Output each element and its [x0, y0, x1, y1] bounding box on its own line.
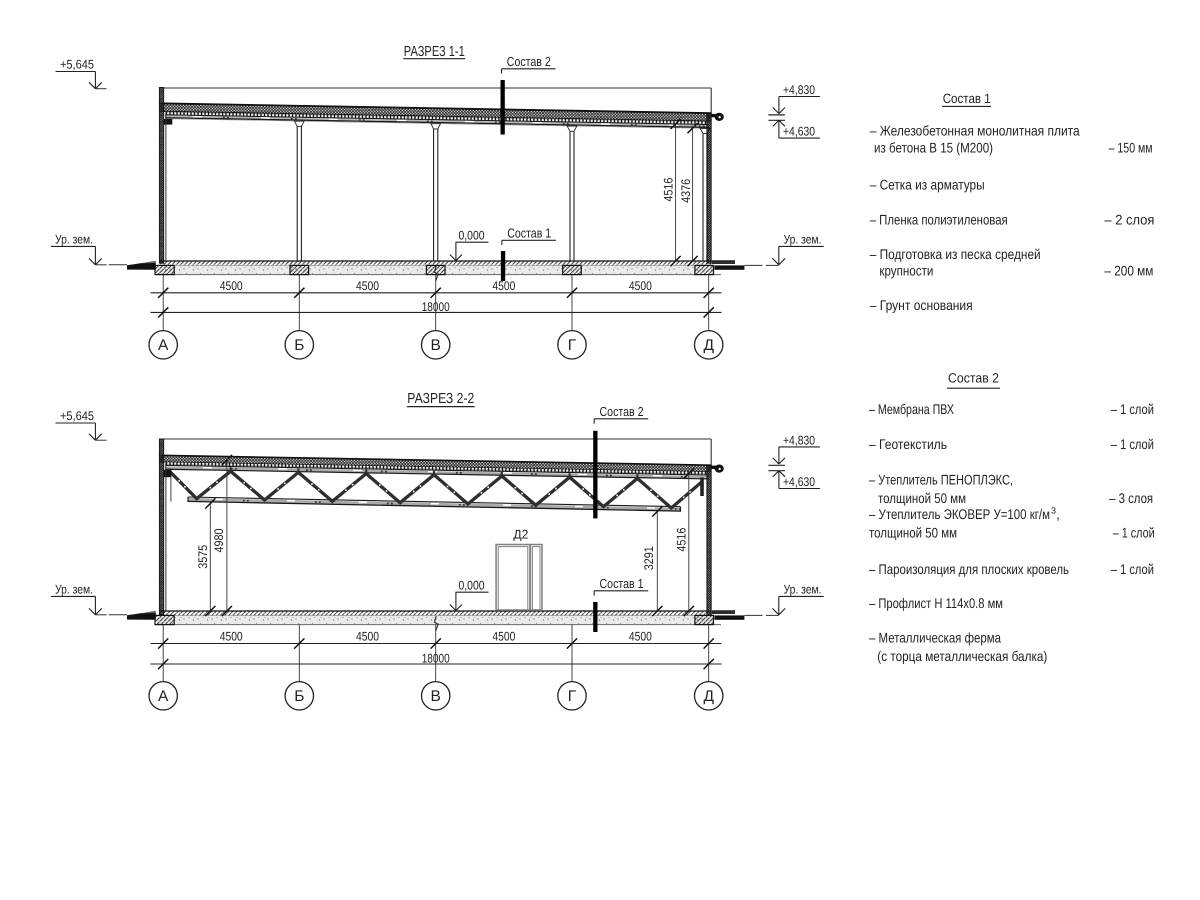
svg-text:(с торца металлическая балка): (с торца металлическая балка)	[877, 648, 1047, 664]
svg-text:А: А	[158, 337, 169, 354]
svg-text:0,000: 0,000	[459, 229, 485, 243]
svg-text:– 2 слоя: – 2 слоя	[1104, 212, 1154, 228]
svg-text:Д: Д	[703, 688, 714, 705]
svg-text:– 3 слоя: – 3 слоя	[1109, 490, 1153, 506]
svg-text:4500: 4500	[492, 279, 515, 293]
svg-text:,: ,	[1056, 506, 1060, 522]
svg-text:– Пленка полиэтиленовая: – Пленка полиэтиленовая	[870, 212, 1008, 228]
svg-text:4500: 4500	[629, 279, 652, 293]
svg-text:– 1 слой: – 1 слой	[1111, 561, 1154, 577]
svg-text:0,000: 0,000	[459, 579, 485, 593]
svg-text:РАЗРЕЗ 2-2: РАЗРЕЗ 2-2	[407, 391, 474, 407]
svg-text:Б: Б	[294, 337, 304, 354]
svg-text:18000: 18000	[422, 300, 450, 314]
svg-text:3575: 3575	[196, 545, 210, 569]
svg-text:– 1 слой: – 1 слой	[1113, 525, 1155, 541]
svg-text:РАЗРЕЗ 1-1: РАЗРЕЗ 1-1	[404, 44, 465, 60]
svg-text:Д: Д	[703, 337, 714, 354]
svg-text:18000: 18000	[422, 651, 450, 665]
svg-text:Состав 1: Состав 1	[600, 576, 644, 591]
svg-text:4516: 4516	[675, 528, 689, 552]
svg-text:4500: 4500	[356, 630, 379, 644]
svg-text:Ур. зем.: Ур. зем.	[784, 232, 822, 246]
svg-text:– Подготовка из песка средней: – Подготовка из песка средней	[870, 246, 1041, 262]
svg-text:4500: 4500	[220, 630, 243, 644]
svg-text:+5,645: +5,645	[60, 58, 94, 72]
svg-text:В: В	[431, 688, 441, 705]
svg-text:А: А	[158, 688, 169, 705]
svg-text:из бетона В 15 (М200): из бетона В 15 (М200)	[874, 140, 993, 156]
svg-text:– 1 слой: – 1 слой	[1111, 436, 1154, 452]
svg-text:Ур. зем.: Ур. зем.	[55, 232, 93, 246]
svg-text:4500: 4500	[220, 279, 243, 293]
svg-text:– Металлическая ферма: – Металлическая ферма	[869, 630, 1001, 646]
svg-text:толщиной 50 мм: толщиной 50 мм	[869, 525, 957, 541]
svg-text:Г: Г	[568, 688, 577, 705]
svg-text:Г: Г	[568, 337, 577, 354]
svg-text:– Профлист Н 114х0.8 мм: – Профлист Н 114х0.8 мм	[869, 595, 1003, 611]
svg-text:4376: 4376	[679, 179, 693, 203]
svg-text:+4,830: +4,830	[783, 433, 815, 447]
svg-text:– 200 мм: – 200 мм	[1104, 263, 1153, 279]
svg-text:– Железобетонная монолитная п: – Железобетонная монолитная плита	[870, 123, 1080, 139]
svg-text:Б: Б	[294, 688, 304, 705]
svg-text:– Пароизоляция для плоских кро: – Пароизоляция для плоских кровель	[869, 561, 1069, 577]
svg-text:+4,830: +4,830	[783, 83, 815, 97]
svg-text:Состав 2: Состав 2	[507, 54, 551, 69]
svg-text:Состав 2: Состав 2	[600, 404, 644, 419]
svg-text:– 1 слой: – 1 слой	[1111, 401, 1154, 417]
svg-text:В: В	[431, 337, 441, 354]
svg-text:толщиной 50 мм: толщиной 50 мм	[878, 490, 966, 506]
svg-text:Состав 1: Состав 1	[943, 91, 991, 106]
svg-text:– Утеплитель ЭКОВЕР У=100 кг/м: – Утеплитель ЭКОВЕР У=100 кг/м	[869, 506, 1050, 522]
svg-text:+4,630: +4,630	[783, 125, 815, 139]
svg-text:+5,645: +5,645	[60, 409, 94, 423]
svg-text:3291: 3291	[642, 546, 656, 570]
svg-text:– 150 мм: – 150 мм	[1109, 140, 1153, 156]
svg-text:– Мембрана ПВХ: – Мембрана ПВХ	[869, 401, 954, 417]
svg-text:+4,630: +4,630	[783, 475, 815, 489]
svg-text:4500: 4500	[629, 630, 652, 644]
svg-text:Состав 2: Состав 2	[948, 371, 999, 386]
svg-text:крупности: крупности	[879, 263, 933, 279]
svg-text:– Грунт основания: – Грунт основания	[870, 297, 973, 313]
svg-text:4980: 4980	[212, 528, 226, 552]
svg-text:– Геотекстиль: – Геотекстиль	[869, 436, 947, 452]
svg-text:Ур. зем.: Ур. зем.	[55, 582, 93, 596]
svg-text:– Сетка из арматуры: – Сетка из арматуры	[870, 177, 985, 193]
svg-text:4500: 4500	[356, 279, 379, 293]
svg-text:4500: 4500	[492, 630, 515, 644]
svg-text:Состав 1: Состав 1	[507, 226, 551, 241]
svg-text:4516: 4516	[662, 178, 676, 202]
svg-text:Д2: Д2	[513, 527, 528, 541]
svg-text:– Утеплитель ПЕНОПЛЭКС,: – Утеплитель ПЕНОПЛЭКС,	[869, 471, 1013, 487]
svg-text:Ур. зем.: Ур. зем.	[784, 582, 822, 596]
